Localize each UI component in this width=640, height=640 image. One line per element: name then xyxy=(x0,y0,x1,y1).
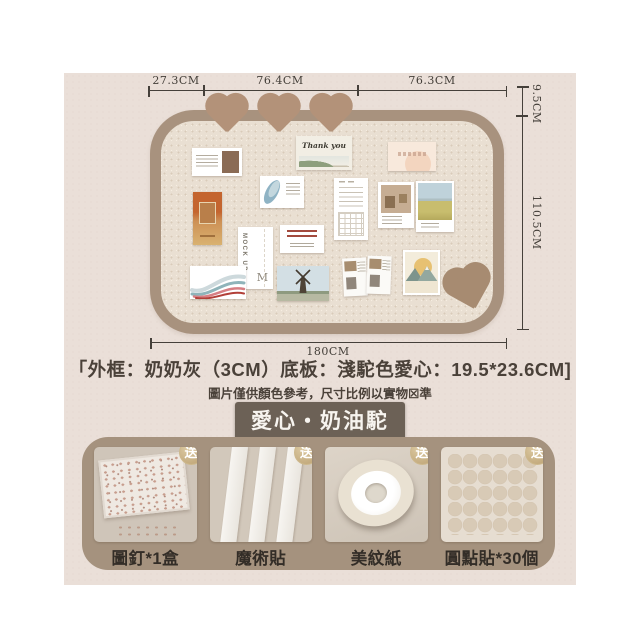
mountain-illustration xyxy=(405,252,438,293)
card-text-lines xyxy=(196,155,218,167)
dimension-tick xyxy=(357,85,359,96)
gifts-panel: 送 圖釘*1盒 送 魔術貼 送 xyxy=(82,437,555,570)
pinned-card-sepia-photo xyxy=(378,182,414,228)
gift-item-masking-tape: 送 美紋紙 xyxy=(325,447,428,570)
gift-item-velcro: 送 魔術貼 xyxy=(210,447,313,570)
card-landscape xyxy=(299,156,349,167)
velcro-strip xyxy=(219,447,247,542)
card-text-lines xyxy=(382,216,402,224)
gift-label: 圓點貼*30個 xyxy=(445,545,539,569)
masking-tape-photo: 送 xyxy=(325,447,428,542)
push-pins-photo: 送 xyxy=(94,447,197,542)
pinned-card-pink xyxy=(388,142,436,171)
colorway-title-badge: 愛心・奶油駝 xyxy=(235,402,405,440)
pin-box xyxy=(98,452,190,519)
wave-illustration xyxy=(190,266,246,299)
pinned-card-note xyxy=(192,148,242,176)
gift-badge-icon: 送 xyxy=(410,447,428,465)
sticker-dot-grid xyxy=(448,454,538,535)
dimension-line-bottom xyxy=(150,342,507,343)
dim-label-27-3: 27.3CM xyxy=(145,74,207,87)
pinned-card-thank-you: Thank you xyxy=(296,136,352,170)
card-photo-block xyxy=(381,185,411,213)
tape-roll xyxy=(332,453,420,533)
card-text-lines xyxy=(290,243,314,247)
pinned-card-field-photo xyxy=(416,181,454,232)
product-infographic: 27.3CM 76.4CM 76.3CM 9.5CM 110.5CM 180CM… xyxy=(0,0,640,640)
gift-label: 美紋紙 xyxy=(351,545,402,569)
collage-page xyxy=(366,256,391,295)
loose-pins xyxy=(116,524,176,537)
card-text-lines xyxy=(421,223,439,229)
spec-line: 「外框：奶奶灰（3CM）底板：淺駝色愛心：19.5*23.6CM] xyxy=(0,356,640,382)
dim-label-110-5: 110.5CM xyxy=(530,192,543,252)
disclaimer-text: 圖片僅供顏色參考，尺寸比例以實物☒準 xyxy=(0,383,640,402)
pinned-card-collage xyxy=(342,255,392,297)
pinned-card-letterpress xyxy=(280,225,324,253)
pinned-card-windmill-photo xyxy=(277,266,329,301)
card-red-text-lines xyxy=(287,230,317,240)
dim-label-9-5: 9.5CM xyxy=(530,84,543,124)
heart-decoration-icon xyxy=(254,95,304,139)
tape-roll-hole xyxy=(363,481,389,505)
feather-illustration xyxy=(260,176,286,208)
gift-item-dot-stickers: 送 圓點貼*30個 xyxy=(441,447,544,570)
planner-header xyxy=(339,181,363,188)
card-photo-block xyxy=(418,183,452,220)
planner-rows xyxy=(339,192,363,210)
pinned-card-feather-postcard xyxy=(260,176,304,208)
pinned-card-orange-photo xyxy=(193,192,222,245)
windmill-illustration xyxy=(277,266,329,301)
dot-stickers-photo: 送 xyxy=(441,447,544,542)
dimension-line-top xyxy=(148,90,507,91)
mockup-initial: M xyxy=(257,271,268,284)
card-photo-block xyxy=(199,202,216,224)
card-text-lines xyxy=(286,183,300,197)
tape-roll-inner xyxy=(347,466,405,519)
collage-page xyxy=(342,257,368,296)
pinned-card-wavy-art xyxy=(190,266,246,299)
velcro-photo: 送 xyxy=(210,447,313,542)
dimension-tick xyxy=(516,115,528,117)
dim-label-76-4: 76.4CM xyxy=(249,74,311,87)
gift-label: 圖釘*1盒 xyxy=(111,545,179,569)
thank-you-text: Thank you xyxy=(296,141,352,150)
heart-decoration-icon xyxy=(202,95,252,139)
card-photo-block xyxy=(222,151,239,173)
card-caption-line xyxy=(200,235,215,237)
gift-item-push-pins: 送 圖釘*1盒 xyxy=(94,447,197,570)
dimension-line-right xyxy=(522,86,523,330)
pinned-card-planner xyxy=(334,178,368,240)
gift-label: 魔術貼 xyxy=(235,545,286,569)
planner-grid xyxy=(338,212,364,236)
velcro-strip xyxy=(247,447,275,542)
dim-label-76-3: 76.3CM xyxy=(401,74,463,87)
pinned-card-mountain-art xyxy=(403,250,440,295)
heart-decoration-icon xyxy=(306,95,356,139)
